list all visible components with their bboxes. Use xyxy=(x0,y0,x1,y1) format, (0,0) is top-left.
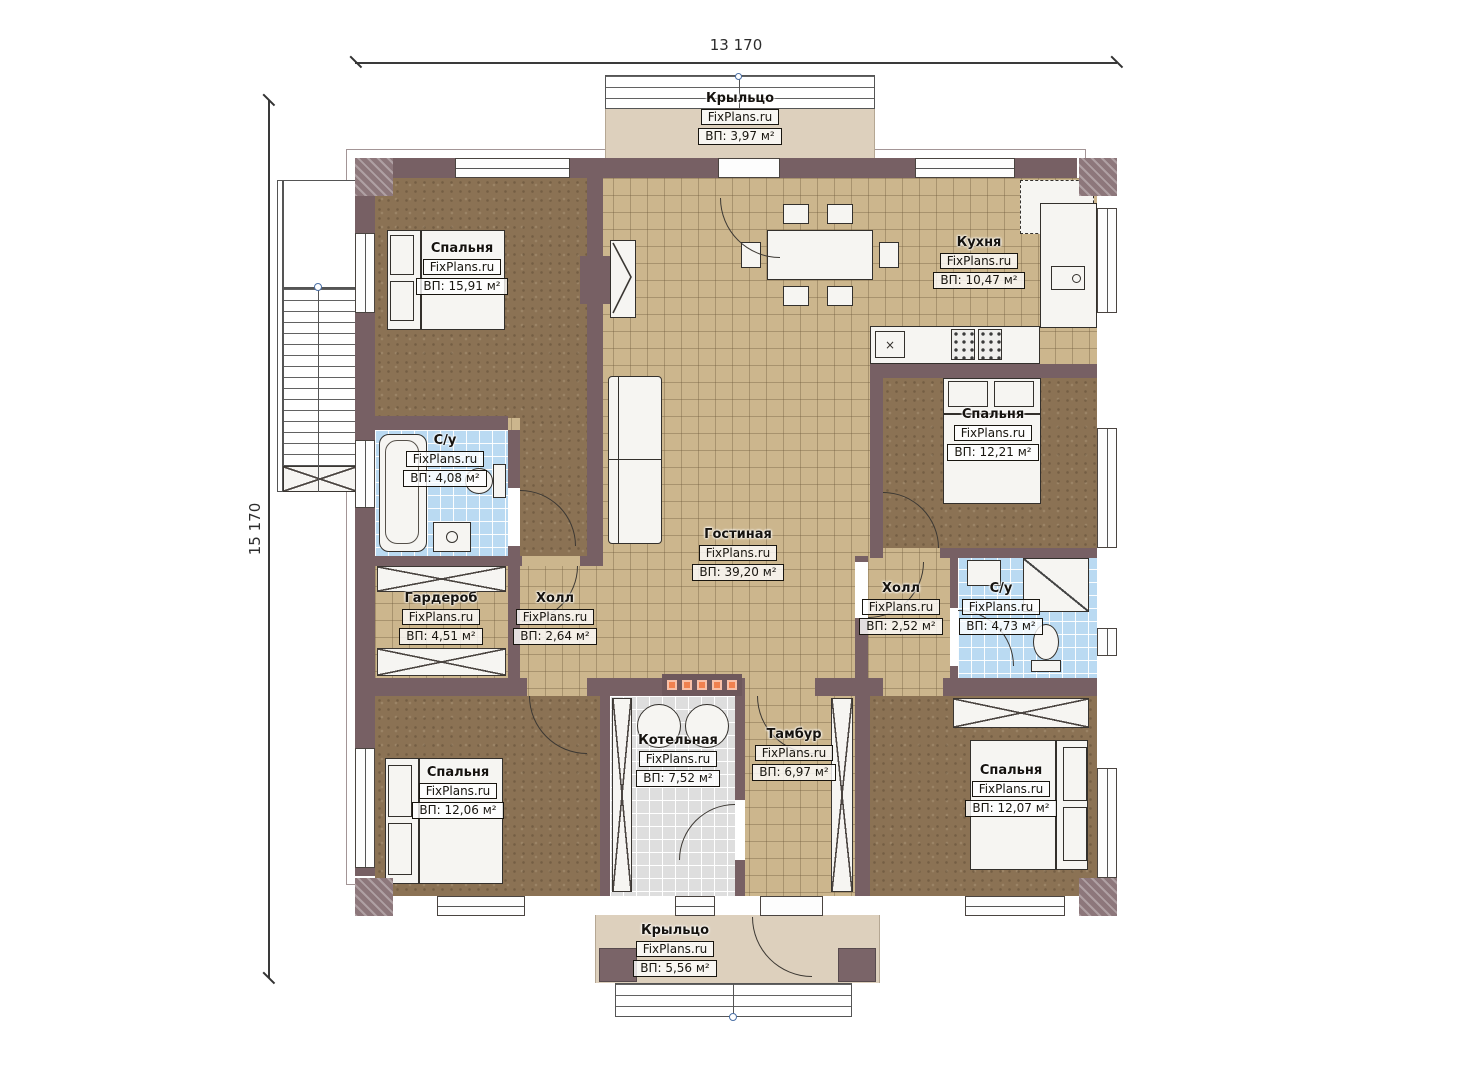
appliance-knob xyxy=(1072,274,1081,283)
wall xyxy=(375,556,522,566)
bathroom-sink xyxy=(433,522,471,552)
watermark: FixPlans.ru xyxy=(423,259,502,276)
window xyxy=(355,233,375,313)
room-area: ВП: 4,08 м² xyxy=(403,470,487,487)
watermark: FixPlans.ru xyxy=(972,781,1051,798)
room-label-wardrobe: Гардероб FixPlans.ru ВП: 4,51 м² xyxy=(379,592,503,645)
sofa xyxy=(608,376,662,544)
wall-corner xyxy=(1079,158,1117,196)
room-label-porch-bottom: Крыльцо FixPlans.ru ВП: 5,56 м² xyxy=(600,924,750,977)
dimension-width-line xyxy=(355,62,1117,64)
room-label-kitchen: Кухня FixPlans.ru ВП: 10,47 м² xyxy=(920,236,1038,289)
wall xyxy=(375,416,508,430)
watermark: FixPlans.ru xyxy=(701,109,780,126)
room-name: Гостиная xyxy=(677,528,799,542)
room-label-boiler: Котельная FixPlans.ru ВП: 7,52 м² xyxy=(619,734,737,787)
sink-drain xyxy=(446,531,458,543)
stove-burners xyxy=(951,329,975,360)
kitchen-counter-bottom: × xyxy=(870,326,1040,364)
window xyxy=(1097,628,1117,656)
window xyxy=(915,158,1015,178)
porch-bottom-axis-line xyxy=(733,983,734,1017)
window xyxy=(1097,208,1117,313)
wardrobe-cabinet xyxy=(953,698,1089,728)
kitchen-sink: × xyxy=(875,331,905,358)
room-label-bedroom-tl: Спальня FixPlans.ru ВП: 15,91 м² xyxy=(403,242,521,295)
wall xyxy=(870,378,883,548)
room-name: Спальня xyxy=(403,242,521,256)
pillow xyxy=(388,823,412,875)
watermark: FixPlans.ru xyxy=(755,745,834,762)
room-name: С/у xyxy=(389,434,501,448)
room-label-living: Гостиная FixPlans.ru ВП: 39,20 м² xyxy=(677,528,799,581)
room-area: ВП: 4,51 м² xyxy=(399,628,483,645)
window xyxy=(965,896,1065,916)
dimension-height-line xyxy=(268,100,270,978)
kitchen-appliance xyxy=(1051,266,1085,290)
fireplace-funnel xyxy=(611,241,633,315)
tall-cabinet xyxy=(612,698,632,892)
room-name: Холл xyxy=(849,582,953,596)
watermark: FixPlans.ru xyxy=(406,451,485,468)
window xyxy=(1097,428,1117,548)
wall xyxy=(508,430,520,488)
wall xyxy=(940,548,1097,558)
wall xyxy=(950,666,958,678)
chair xyxy=(827,286,853,306)
porch-column xyxy=(838,948,876,982)
watermark: FixPlans.ru xyxy=(419,783,498,800)
wall-corner xyxy=(1079,878,1117,916)
room-area: ВП: 12,21 м² xyxy=(947,444,1038,461)
wall xyxy=(815,678,883,696)
room-name: Гардероб xyxy=(379,592,503,606)
watermark: FixPlans.ru xyxy=(699,545,778,562)
room-area: ВП: 5,56 м² xyxy=(633,960,717,977)
room-area: ВП: 10,47 м² xyxy=(933,272,1024,289)
wall xyxy=(742,678,745,696)
wall xyxy=(600,696,610,896)
room-label-hall-left: Холл FixPlans.ru ВП: 2,64 м² xyxy=(503,592,607,645)
room-label-vestibule: Тамбур FixPlans.ru ВП: 6,97 м² xyxy=(739,728,849,781)
dining-table xyxy=(767,230,873,280)
watermark: FixPlans.ru xyxy=(639,751,718,768)
room-name: Крыльцо xyxy=(605,92,875,106)
room-area: ВП: 7,52 м² xyxy=(636,770,720,787)
room-name: Спальня xyxy=(951,764,1071,778)
window xyxy=(455,158,570,178)
watermark: FixPlans.ru xyxy=(962,599,1041,616)
window xyxy=(437,896,525,916)
porch-top-axis-dot xyxy=(735,73,742,80)
dimension-width-label: 13 170 xyxy=(656,36,816,54)
room-area: ВП: 12,07 м² xyxy=(965,800,1056,817)
stove-burners xyxy=(978,329,1002,360)
entry-door-opening xyxy=(760,896,823,916)
chair xyxy=(783,286,809,306)
staircase-center-line xyxy=(318,288,319,492)
wall xyxy=(587,678,662,696)
room-name: С/у xyxy=(947,582,1055,596)
wall xyxy=(735,860,745,896)
chair xyxy=(879,242,899,268)
room-name: Котельная xyxy=(619,734,737,748)
wall xyxy=(870,548,883,558)
wall xyxy=(855,696,870,896)
heater-ember xyxy=(682,680,692,690)
window xyxy=(355,748,375,868)
watermark: FixPlans.ru xyxy=(402,609,481,626)
door-opening xyxy=(735,800,745,860)
staircase-landing xyxy=(283,180,357,288)
room-name: Крыльцо xyxy=(600,924,750,938)
fireplace-hearth xyxy=(610,240,636,318)
window xyxy=(355,440,375,508)
wall xyxy=(943,678,1097,696)
room-area: ВП: 39,20 м² xyxy=(692,564,783,581)
heater-ember xyxy=(727,680,737,690)
heater-band xyxy=(662,674,742,696)
room-label-bath-left: С/у FixPlans.ru ВП: 4,08 м² xyxy=(389,434,501,487)
staircase-bottom xyxy=(283,466,357,492)
wardrobe-cabinet xyxy=(377,648,506,676)
kitchen-counter-right xyxy=(1040,203,1097,328)
entry-door-opening xyxy=(718,158,780,178)
watermark: FixPlans.ru xyxy=(516,609,595,626)
wall xyxy=(375,678,527,696)
room-name: Холл xyxy=(503,592,607,606)
pillow xyxy=(994,381,1034,407)
room-area: ВП: 4,73 м² xyxy=(959,618,1043,635)
room-name: Кухня xyxy=(920,236,1038,250)
room-label-bedroom-br: Спальня FixPlans.ru ВП: 12,07 м² xyxy=(951,764,1071,817)
room-label-bath-right: С/у FixPlans.ru ВП: 4,73 м² xyxy=(947,582,1055,635)
heater-ember xyxy=(697,680,707,690)
chair xyxy=(783,204,809,224)
staircase-treads xyxy=(283,288,357,466)
watermark: FixPlans.ru xyxy=(940,253,1019,270)
watermark: FixPlans.ru xyxy=(954,425,1033,442)
heater-ember xyxy=(712,680,722,690)
wall xyxy=(870,364,1097,378)
watermark: FixPlans.ru xyxy=(636,941,715,958)
room-name: Спальня xyxy=(399,766,517,780)
door-opening xyxy=(508,488,520,546)
room-area: ВП: 6,97 м² xyxy=(752,764,836,781)
window xyxy=(675,896,715,916)
room-label-porch-top: Крыльцо FixPlans.ru ВП: 3,97 м² xyxy=(605,92,875,145)
room-area: ВП: 2,64 м² xyxy=(513,628,597,645)
room-area: ВП: 3,97 м² xyxy=(698,128,782,145)
house: × xyxy=(355,158,1077,876)
room-label-bedroom-bl: Спальня FixPlans.ru ВП: 12,06 м² xyxy=(399,766,517,819)
room-label-hall-right: Холл FixPlans.ru ВП: 2,52 м² xyxy=(849,582,953,635)
door-opening xyxy=(522,556,580,566)
chair xyxy=(827,204,853,224)
staircase-start-dot xyxy=(314,283,322,291)
wall-corner xyxy=(355,878,393,916)
wall xyxy=(580,556,603,566)
toilet-tank xyxy=(1031,660,1061,672)
sofa-line xyxy=(609,459,661,460)
room-area: ВП: 12,06 м² xyxy=(412,802,503,819)
room-name: Тамбур xyxy=(739,728,849,742)
room-area: ВП: 2,52 м² xyxy=(859,618,943,635)
heater-ember xyxy=(667,680,677,690)
window xyxy=(1097,768,1117,878)
room-name: Спальня xyxy=(933,408,1053,422)
floor-plan: 13 170 15 170 Крыльцо FixPlans.ru ВП: 3,… xyxy=(0,0,1473,1080)
wardrobe-cabinet xyxy=(377,566,506,592)
room-area: ВП: 15,91 м² xyxy=(416,278,507,295)
room-label-bedroom-right: Спальня FixPlans.ru ВП: 12,21 м² xyxy=(933,408,1053,461)
watermark: FixPlans.ru xyxy=(862,599,941,616)
dimension-height-label: 15 170 xyxy=(246,484,264,574)
wall xyxy=(587,178,603,558)
porch-bottom-axis-dot xyxy=(729,1013,737,1021)
wall-corner xyxy=(355,158,393,196)
pillow xyxy=(948,381,988,407)
